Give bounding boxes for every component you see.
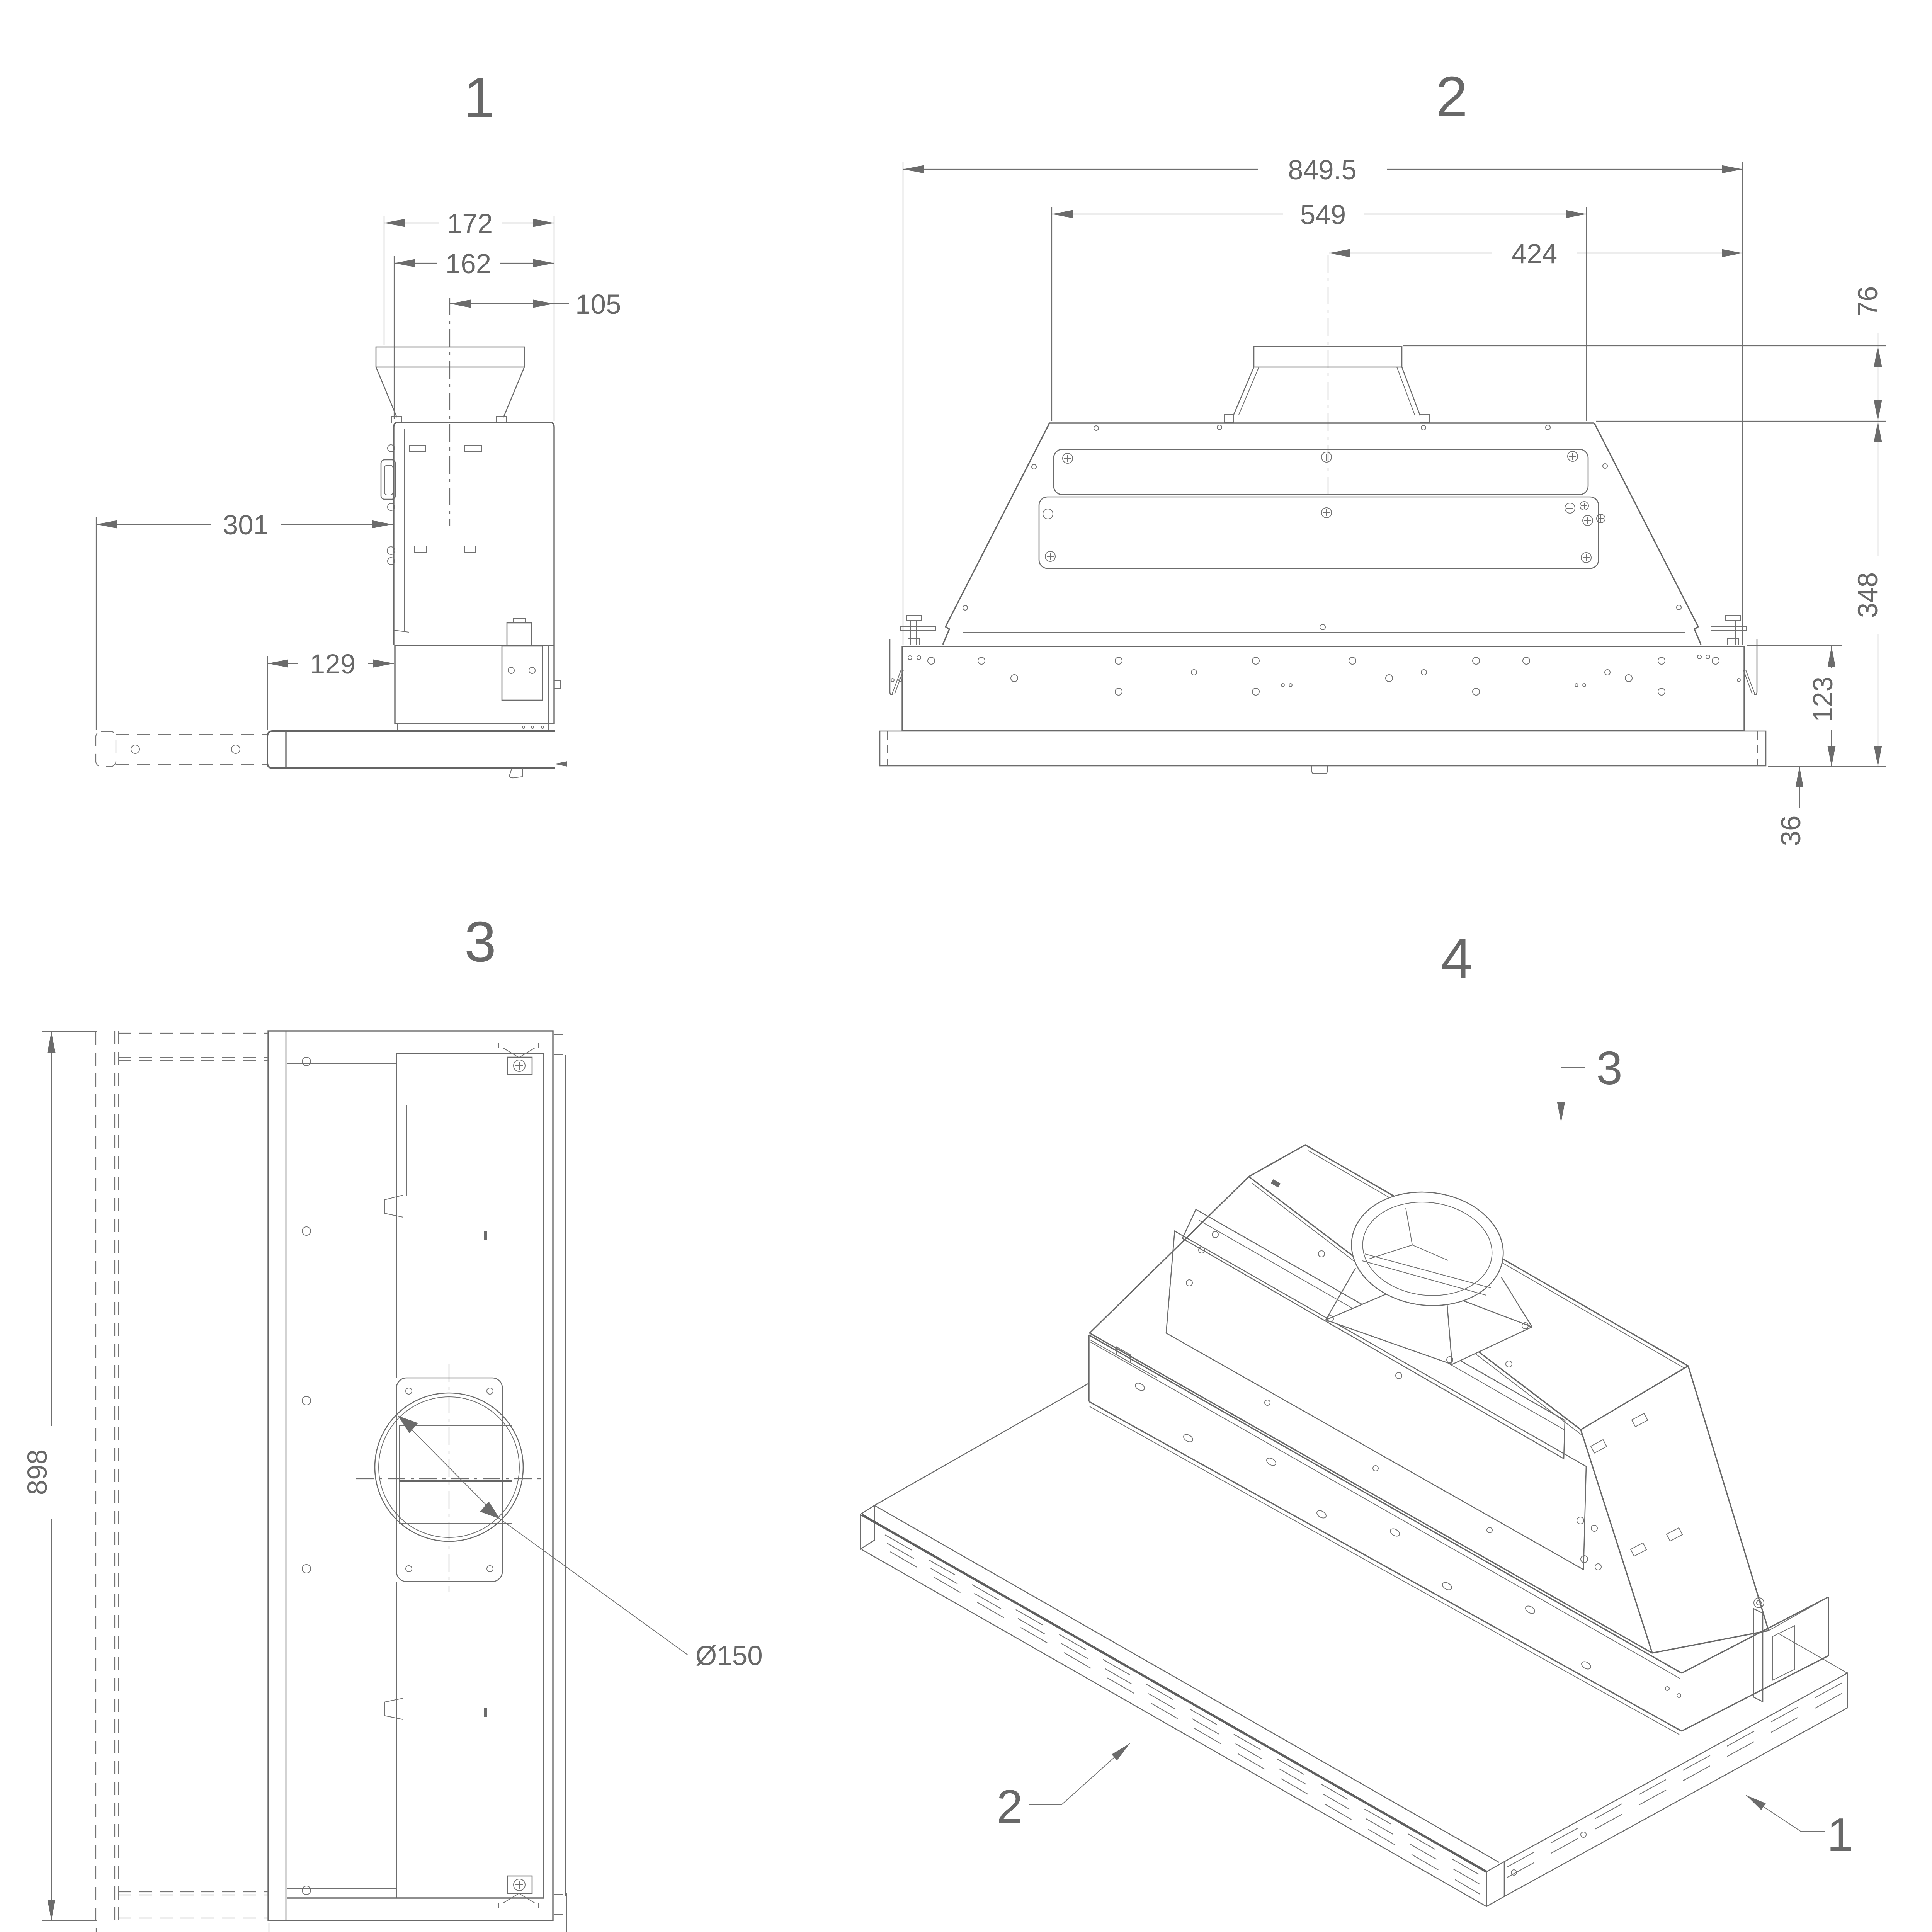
svg-text:36: 36 (1776, 816, 1806, 846)
svg-text:1: 1 (1827, 1808, 1853, 1861)
svg-text:301: 301 (223, 510, 269, 541)
svg-text:424: 424 (1512, 239, 1557, 269)
svg-text:2: 2 (997, 1780, 1023, 1833)
svg-text:Ø150: Ø150 (696, 1641, 763, 1671)
svg-text:123: 123 (1808, 677, 1838, 722)
svg-text:76: 76 (1853, 286, 1883, 317)
svg-text:348: 348 (1853, 572, 1883, 618)
svg-text:4: 4 (1441, 927, 1473, 990)
svg-text:549: 549 (1300, 200, 1346, 230)
svg-text:3: 3 (464, 910, 496, 974)
svg-text:1: 1 (463, 66, 495, 130)
svg-text:898: 898 (22, 1449, 53, 1495)
svg-text:172: 172 (447, 209, 493, 239)
svg-text:3: 3 (1596, 1042, 1622, 1094)
svg-text:129: 129 (310, 649, 355, 680)
svg-text:105: 105 (575, 289, 621, 320)
svg-text:162: 162 (446, 249, 491, 279)
svg-text:849.5: 849.5 (1288, 155, 1357, 185)
svg-text:2: 2 (1436, 65, 1468, 129)
